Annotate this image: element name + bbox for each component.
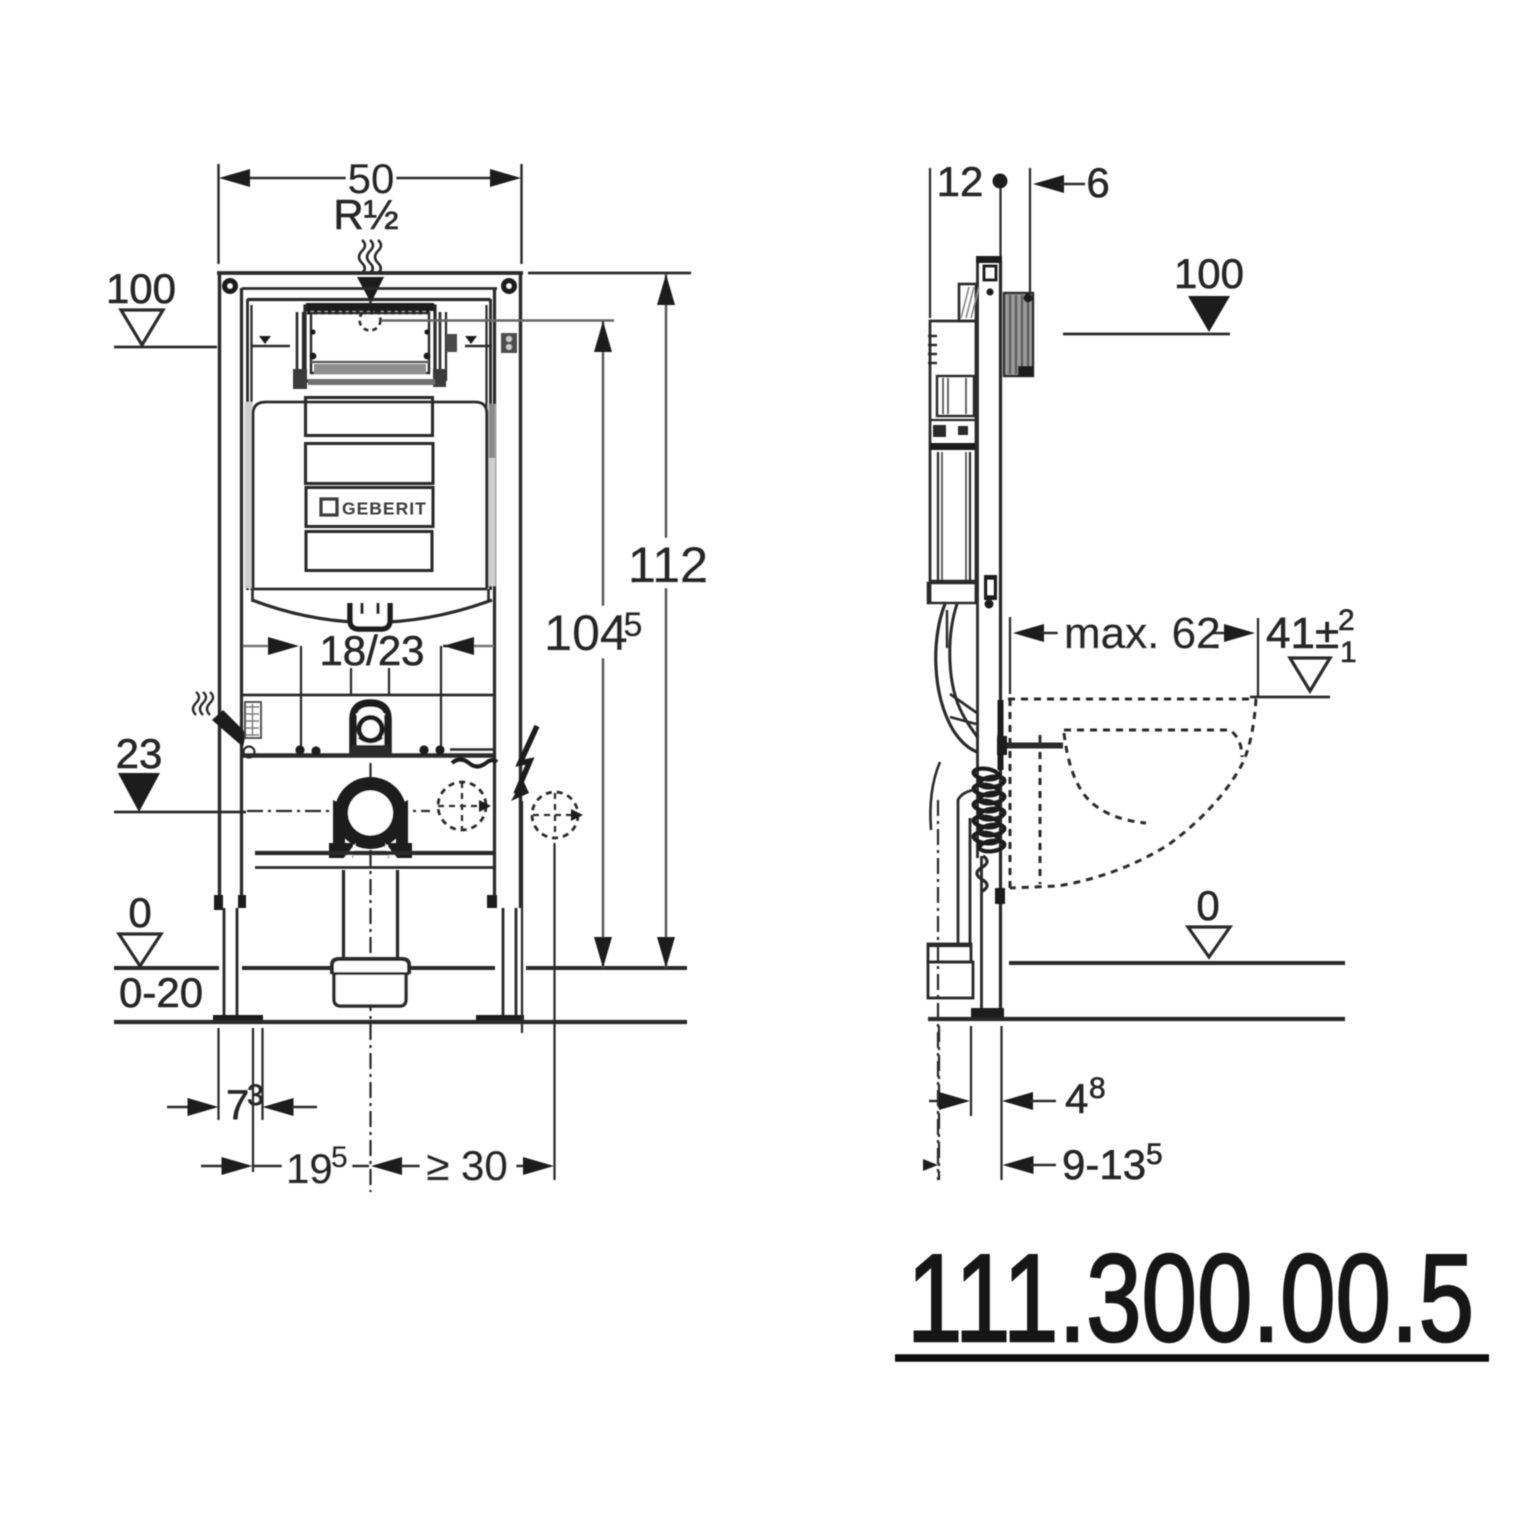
svg-text:41±: 41± xyxy=(1266,609,1339,658)
svg-text:0-20: 0-20 xyxy=(119,969,203,1016)
svg-text:1: 1 xyxy=(1340,636,1357,669)
svg-text:104: 104 xyxy=(544,605,627,661)
svg-text:6: 6 xyxy=(1086,159,1109,206)
svg-text:R½: R½ xyxy=(333,191,398,238)
svg-text:5: 5 xyxy=(331,1141,348,1174)
svg-text:100: 100 xyxy=(106,265,176,312)
svg-text:100: 100 xyxy=(1174,250,1244,297)
svg-text:3: 3 xyxy=(247,1079,264,1112)
svg-text:23: 23 xyxy=(116,730,163,777)
svg-text:7: 7 xyxy=(226,1081,249,1128)
svg-text:2: 2 xyxy=(1338,604,1355,637)
svg-text:0: 0 xyxy=(128,889,151,936)
svg-text:111.300.00.5: 111.300.00.5 xyxy=(907,1230,1474,1368)
svg-text:112: 112 xyxy=(628,537,708,593)
svg-text:8: 8 xyxy=(1089,1072,1106,1105)
svg-text:4: 4 xyxy=(1065,1075,1088,1122)
svg-text:GEBERIT: GEBERIT xyxy=(342,499,427,519)
svg-text:max. 62: max. 62 xyxy=(1064,609,1221,658)
svg-text:0: 0 xyxy=(1196,882,1219,929)
svg-text:≥ 30: ≥ 30 xyxy=(426,1142,507,1189)
svg-text:5: 5 xyxy=(1146,1138,1163,1171)
svg-text:19: 19 xyxy=(286,1145,333,1192)
svg-text:12: 12 xyxy=(937,158,984,205)
svg-text:18/23: 18/23 xyxy=(319,627,424,674)
svg-text:5: 5 xyxy=(624,606,643,644)
svg-text:9-13: 9-13 xyxy=(1062,1141,1146,1188)
